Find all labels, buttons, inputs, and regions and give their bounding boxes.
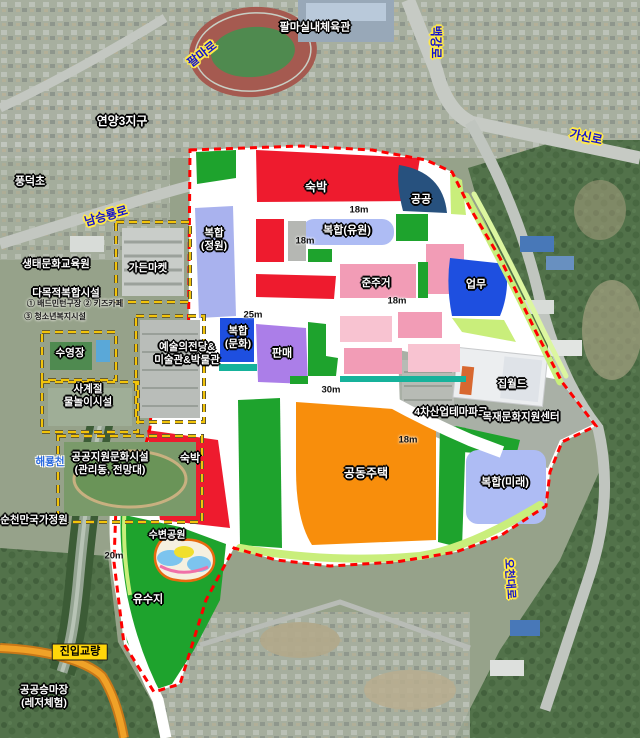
garden-market-building <box>122 228 184 296</box>
zone-pink-block <box>344 348 402 374</box>
zone-pink-block <box>398 312 442 338</box>
zone-red-block <box>256 219 284 262</box>
jipworld-building-roof <box>500 356 542 402</box>
zone-green <box>196 150 236 184</box>
zone-mixed-garden <box>195 206 236 318</box>
eco-center-building <box>70 236 104 252</box>
map-graphics <box>0 0 640 738</box>
warehouse-white <box>490 660 524 676</box>
field-track <box>74 451 186 507</box>
warehouse-blue <box>520 236 554 252</box>
gym-roof <box>306 3 386 21</box>
zone-pink-block <box>340 316 392 342</box>
zone-teal-strip <box>340 376 466 382</box>
zone-mixed-amusement <box>302 219 394 245</box>
zone-business <box>448 258 507 316</box>
zone-housing <box>296 402 436 545</box>
warehouse-blue <box>510 620 540 636</box>
zone-green <box>308 249 332 262</box>
land-use-plan-map: 팔마실내체육관 연양3지구 풍덕초 생태문화교육원 가든마켓 다목적복합시설 ①… <box>0 0 640 738</box>
zone-retail <box>256 324 308 384</box>
satellite-field <box>364 670 456 710</box>
pond-island <box>174 546 194 558</box>
zone-gray-block <box>288 221 306 261</box>
zone-semi-residential <box>340 264 416 298</box>
pool-court <box>50 342 92 370</box>
seasons-field <box>48 388 132 426</box>
zone-green <box>418 262 428 298</box>
zone-teal-strip <box>219 364 257 371</box>
zone-green <box>396 214 428 241</box>
zone-pink-block <box>408 344 460 372</box>
warehouse-blue <box>546 256 574 270</box>
zone-mixed-culture <box>220 318 254 362</box>
zone-lodging-top <box>256 150 420 202</box>
satellite-field <box>574 180 626 240</box>
zone-red-block <box>256 274 336 299</box>
pool-water <box>96 340 110 362</box>
satellite-field <box>260 622 340 658</box>
satellite-field <box>582 280 640 380</box>
zone-green-strip <box>238 398 282 548</box>
